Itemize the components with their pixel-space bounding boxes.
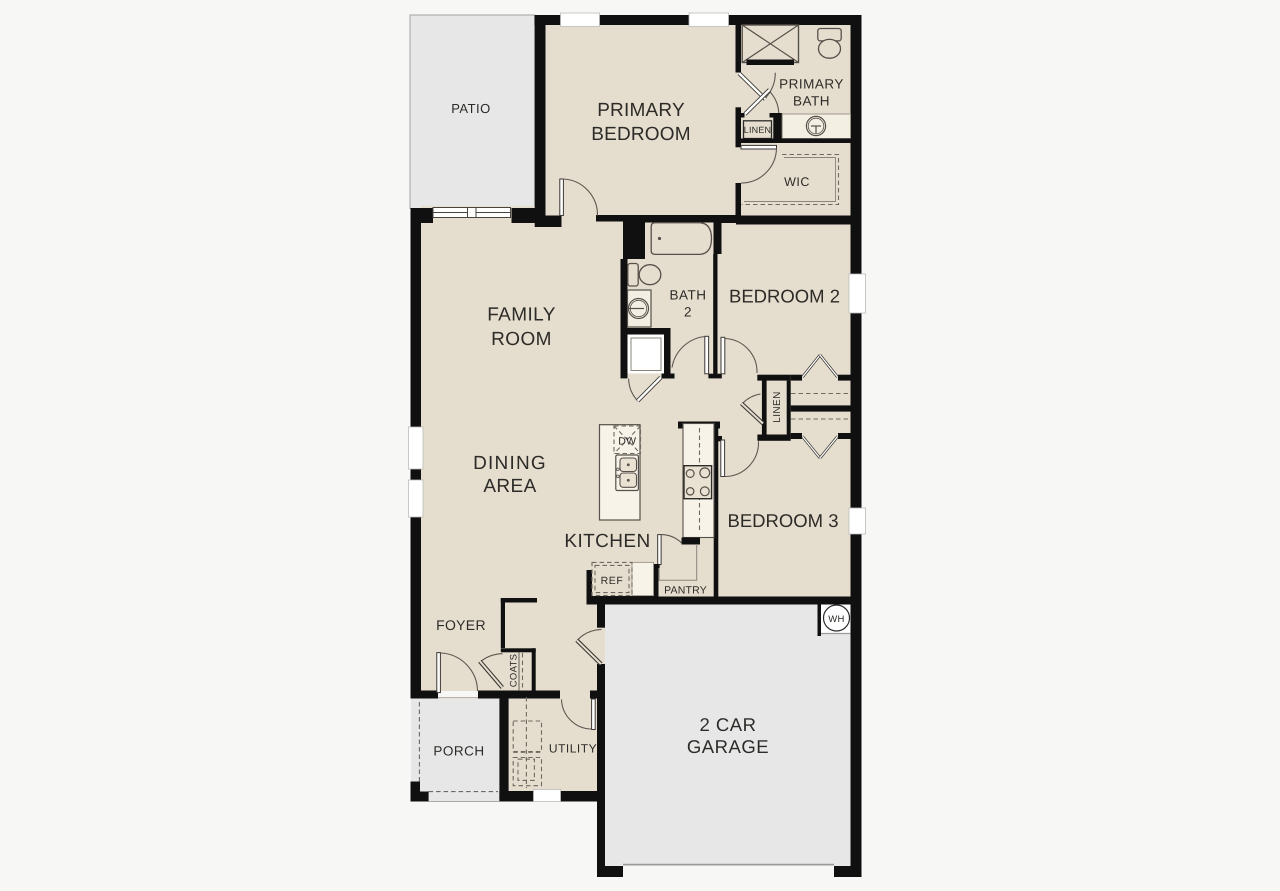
svg-text:DINING: DINING xyxy=(473,453,547,474)
svg-text:GARAGE: GARAGE xyxy=(687,736,769,757)
svg-text:COATS: COATS xyxy=(509,654,520,688)
svg-text:2 CAR: 2 CAR xyxy=(700,714,757,735)
svg-text:UTILITY: UTILITY xyxy=(549,742,597,756)
svg-text:PATIO: PATIO xyxy=(451,101,491,116)
svg-text:PRIMARY: PRIMARY xyxy=(779,77,844,92)
svg-text:PANTRY: PANTRY xyxy=(664,585,707,597)
svg-text:BEDROOM: BEDROOM xyxy=(591,124,691,145)
svg-text:WH: WH xyxy=(828,614,844,625)
svg-text:BATH: BATH xyxy=(669,288,706,303)
svg-text:AREA: AREA xyxy=(483,476,536,497)
svg-text:BEDROOM 2: BEDROOM 2 xyxy=(729,286,840,307)
svg-text:BEDROOM 3: BEDROOM 3 xyxy=(727,510,838,531)
svg-text:PRIMARY: PRIMARY xyxy=(597,100,685,121)
svg-text:2: 2 xyxy=(684,305,692,320)
svg-text:KITCHEN: KITCHEN xyxy=(564,531,650,552)
svg-text:LINEN: LINEN xyxy=(744,125,772,135)
svg-text:REF: REF xyxy=(601,575,624,587)
svg-text:ROOM: ROOM xyxy=(491,329,552,350)
svg-text:FAMILY: FAMILY xyxy=(487,305,556,326)
svg-text:BATH: BATH xyxy=(793,94,830,109)
svg-text:WIC: WIC xyxy=(784,175,810,189)
svg-text:FOYER: FOYER xyxy=(436,617,486,633)
svg-text:PORCH: PORCH xyxy=(433,744,484,759)
svg-text:LINEN: LINEN xyxy=(772,391,783,422)
svg-text:DW: DW xyxy=(618,436,636,448)
